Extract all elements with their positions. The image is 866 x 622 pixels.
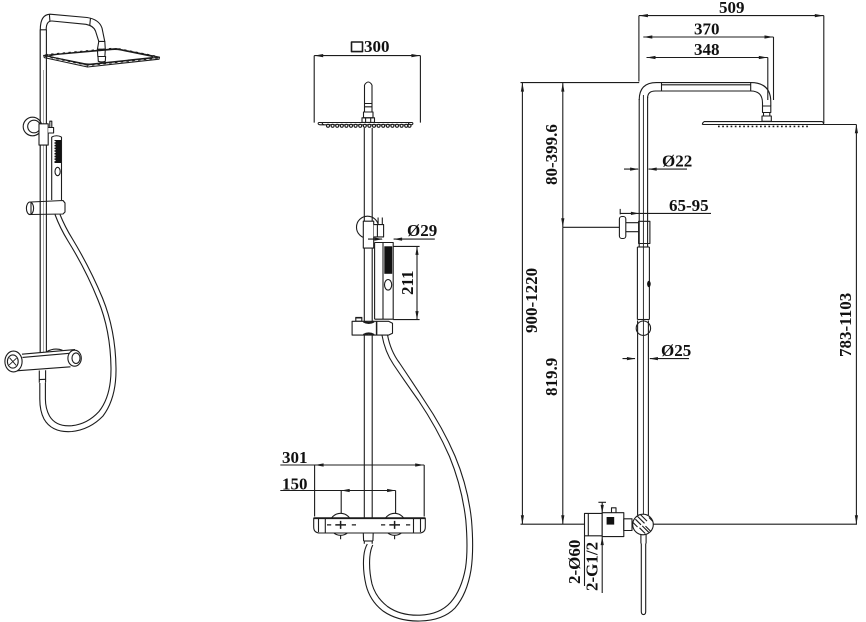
svg-text:80-399.6: 80-399.6	[542, 124, 561, 185]
svg-text:783-1103: 783-1103	[836, 293, 855, 357]
svg-text:819.9: 819.9	[542, 358, 561, 396]
svg-text:65-95: 65-95	[669, 196, 709, 215]
svg-text:Ø29: Ø29	[407, 221, 437, 240]
svg-text:2-Ø60: 2-Ø60	[565, 540, 584, 584]
svg-text:Ø22: Ø22	[662, 152, 692, 171]
svg-text:211: 211	[398, 270, 417, 295]
svg-text:348: 348	[694, 40, 720, 59]
svg-text:Ø25: Ø25	[661, 341, 691, 360]
svg-text:900-1220: 900-1220	[522, 268, 541, 333]
svg-text:509: 509	[719, 0, 745, 17]
svg-text:370: 370	[694, 20, 720, 39]
svg-text:2-G1/2: 2-G1/2	[583, 542, 602, 591]
svg-text:301: 301	[282, 448, 308, 467]
svg-text:300: 300	[364, 37, 390, 56]
